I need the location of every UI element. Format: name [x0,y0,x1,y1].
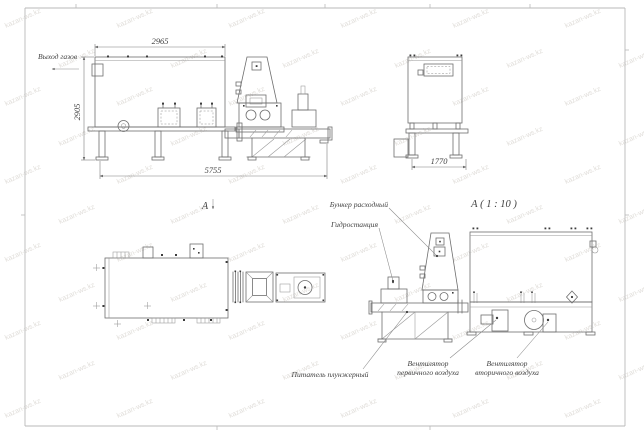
callout-hopper-label: Бункер расходный [329,200,388,209]
watermark-layer [0,0,644,430]
callout-secondary-fan-line1: Вентилятор [487,359,528,368]
dim-5755: 5755 [205,166,222,175]
dim-1770: 1770 [431,157,449,166]
callout-secondary-fan-line2: вторичного воздуха [475,368,539,377]
callout-feeder-label: Питатель плунжерный [291,370,369,379]
callout-primary-fan-line2: первичного воздуха [397,368,459,377]
callout-hydraulic-label: Гидростанция [330,220,379,229]
engineering-drawing-canvas: kazan-ws.kz kazan-ws.kz [0,0,644,430]
drawing-sheet: kazan-ws.kz kazan-ws.kz [0,0,644,430]
section-label: А [201,201,209,212]
gas-outlet-label: Выход газов [38,52,78,61]
detail-view-title: А ( 1 : 10 ) [470,199,517,210]
dim-2965: 2965 [152,37,169,46]
callout-primary-fan-line1: Вентилятор [408,359,449,368]
dim-2905: 2905 [73,104,82,121]
